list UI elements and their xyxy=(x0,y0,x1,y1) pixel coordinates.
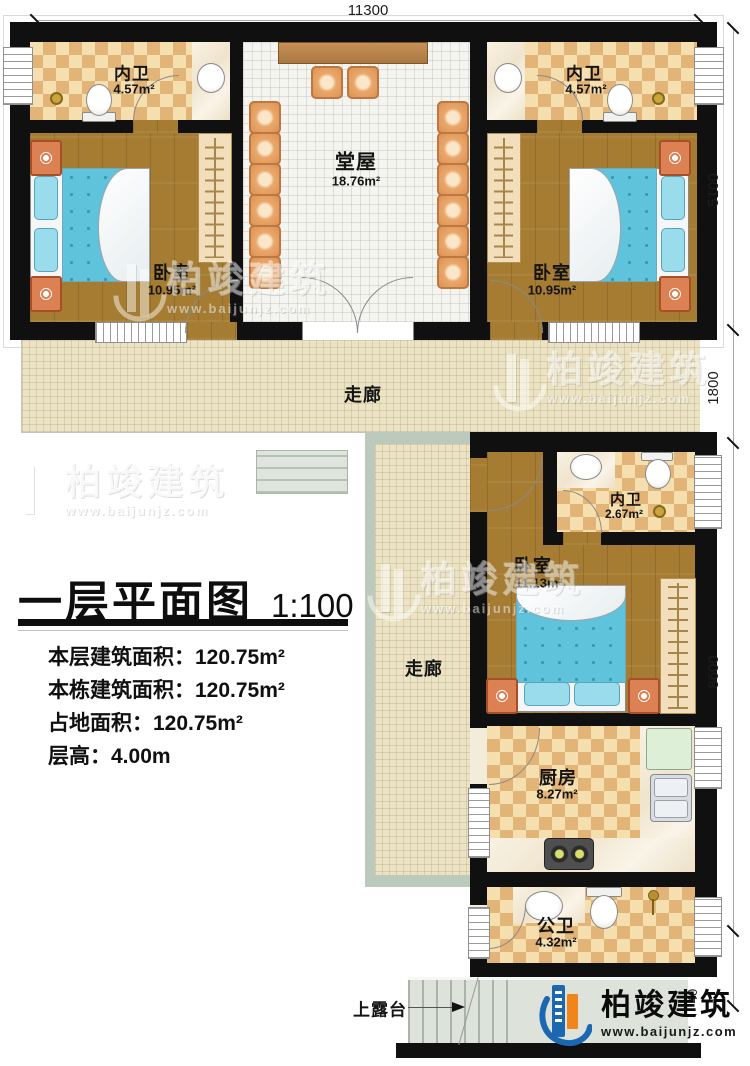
nightstand-icon xyxy=(30,140,62,176)
dimension-label-top: 11300 xyxy=(36,2,700,19)
chair-icon xyxy=(437,225,469,258)
chair-icon xyxy=(437,132,469,165)
window xyxy=(3,47,33,105)
window xyxy=(468,788,490,858)
window xyxy=(548,322,640,343)
pillow-icon xyxy=(661,176,685,220)
bath-right-door-opening xyxy=(537,120,582,133)
towel-hook-stem xyxy=(652,899,654,915)
kitchen-sink-icon xyxy=(650,774,692,822)
room-area-bedroom-mid: 11.13m² xyxy=(515,576,563,591)
watermark-url: www.baijunjz.com xyxy=(65,503,229,518)
pillow-icon xyxy=(34,176,58,220)
entrance-steps xyxy=(256,450,348,494)
room-area-hall: 18.76m² xyxy=(332,174,380,189)
wardrobe-icon xyxy=(487,133,521,263)
dimension-label-right-8600: 8600 xyxy=(705,637,721,707)
floor-plan-canvas: 11300 5100 1800 8600 40 xyxy=(0,0,750,1066)
room-area-bath-left: 4.57m² xyxy=(113,82,154,97)
corridor-side-curb xyxy=(365,875,470,887)
chair-icon xyxy=(437,163,469,196)
pillow-icon xyxy=(34,228,58,272)
bedroom-mid-door-opening xyxy=(470,458,487,512)
window xyxy=(694,455,722,529)
info-floor-area: 本层建筑面积：120.75m² xyxy=(48,641,285,671)
nightstand-icon xyxy=(628,678,660,714)
dimension-line-right xyxy=(733,28,734,1006)
room-area-bedroom-right: 10.95m² xyxy=(528,283,576,298)
room-area-bath-public: 4.32m² xyxy=(535,935,576,950)
bed-blanket xyxy=(98,168,150,282)
fridge-icon xyxy=(646,728,692,770)
chair-icon xyxy=(437,194,469,227)
chair-icon xyxy=(249,101,281,134)
window xyxy=(694,727,722,789)
company-logo-text: 柏竣建筑 xyxy=(601,991,737,1021)
kitchen-door-opening xyxy=(470,728,487,784)
company-logo-icon xyxy=(538,983,592,1047)
info-building-area: 本栋建筑面积：120.75m² xyxy=(48,674,285,704)
title-underline xyxy=(18,619,348,626)
pillow-icon xyxy=(524,682,570,706)
room-label-bedroom-right: 卧室 xyxy=(533,259,571,285)
chair-icon xyxy=(249,194,281,227)
corridor-side-curb xyxy=(365,432,375,887)
pillow-icon xyxy=(661,228,685,272)
floor-drain-icon xyxy=(50,92,63,105)
wardrobe-icon xyxy=(660,578,696,714)
nightstand-icon xyxy=(659,140,691,176)
chair-icon xyxy=(437,256,469,289)
room-label-corridor-side: 走廊 xyxy=(405,655,443,681)
company-logo-url: www.baijunjz.com xyxy=(601,1024,737,1039)
arrow-icon xyxy=(452,1002,465,1012)
sink-basin xyxy=(654,800,688,819)
watermark: 柏竣建筑 www.baijunjz.com xyxy=(16,464,229,518)
room-area-kitchen: 8.27m² xyxy=(536,787,577,802)
corridor-edge-line xyxy=(21,340,22,433)
company-logo: 柏竣建筑 www.baijunjz.com xyxy=(538,983,737,1047)
chair-icon xyxy=(437,101,469,134)
dimension-label-right-5100: 5100 xyxy=(705,155,721,225)
chair-icon xyxy=(347,66,379,99)
nightstand-icon xyxy=(659,276,691,312)
room-area-bath-right: 4.57m² xyxy=(565,82,606,97)
title-underline-thin xyxy=(18,630,348,631)
corridor-edge-line xyxy=(22,432,366,433)
bath-left-door-opening xyxy=(133,120,178,133)
nightstand-icon xyxy=(30,276,62,312)
floor-drain-icon xyxy=(652,92,665,105)
room-label-bedroom-mid: 卧室 xyxy=(514,552,552,578)
window xyxy=(468,907,490,959)
chair-icon xyxy=(249,132,281,165)
room-label-bedroom-left: 卧室 xyxy=(153,259,191,285)
room-label-hall: 堂屋 xyxy=(335,146,377,175)
corridor-side-curb xyxy=(365,432,470,444)
bath-mid-door-opening xyxy=(563,532,601,545)
watermark-logo-icon xyxy=(16,466,56,516)
dimension-line-top xyxy=(36,20,700,21)
window xyxy=(694,897,722,957)
window xyxy=(95,322,187,343)
toilet-icon xyxy=(645,459,671,489)
room-label-corridor-upper: 走廊 xyxy=(344,381,382,407)
leader-line xyxy=(408,1007,452,1008)
wardrobe-icon xyxy=(198,133,232,263)
sink-icon xyxy=(570,454,602,480)
chair-icon xyxy=(311,66,343,99)
room-area-bedroom-left: 10.95m² xyxy=(148,283,196,298)
sink-basin xyxy=(654,778,688,797)
window xyxy=(694,47,724,105)
dimension-label-right-1800: 1800 xyxy=(705,353,721,423)
chair-icon xyxy=(249,256,281,289)
toilet-icon xyxy=(590,895,618,929)
sink-icon xyxy=(494,63,522,93)
sideboard-table-icon xyxy=(278,42,428,64)
chair-icon xyxy=(249,225,281,258)
sink-icon xyxy=(197,63,225,93)
floor-drain-icon xyxy=(653,505,666,518)
nightstand-icon xyxy=(486,678,518,714)
stove-icon xyxy=(544,838,594,870)
toilet-icon xyxy=(86,84,112,116)
chair-icon xyxy=(249,163,281,196)
toilet-icon xyxy=(607,84,633,116)
pillow-icon xyxy=(574,682,620,706)
info-floor-height: 层高：4.00m xyxy=(48,740,171,770)
watermark-text: 柏竣建筑 xyxy=(65,464,229,500)
terrace-stairs-label: 上露台 xyxy=(353,996,407,1021)
info-footprint-area: 占地面积：120.75m² xyxy=(48,707,243,737)
room-area-bath-mid: 2.67m² xyxy=(605,507,643,521)
